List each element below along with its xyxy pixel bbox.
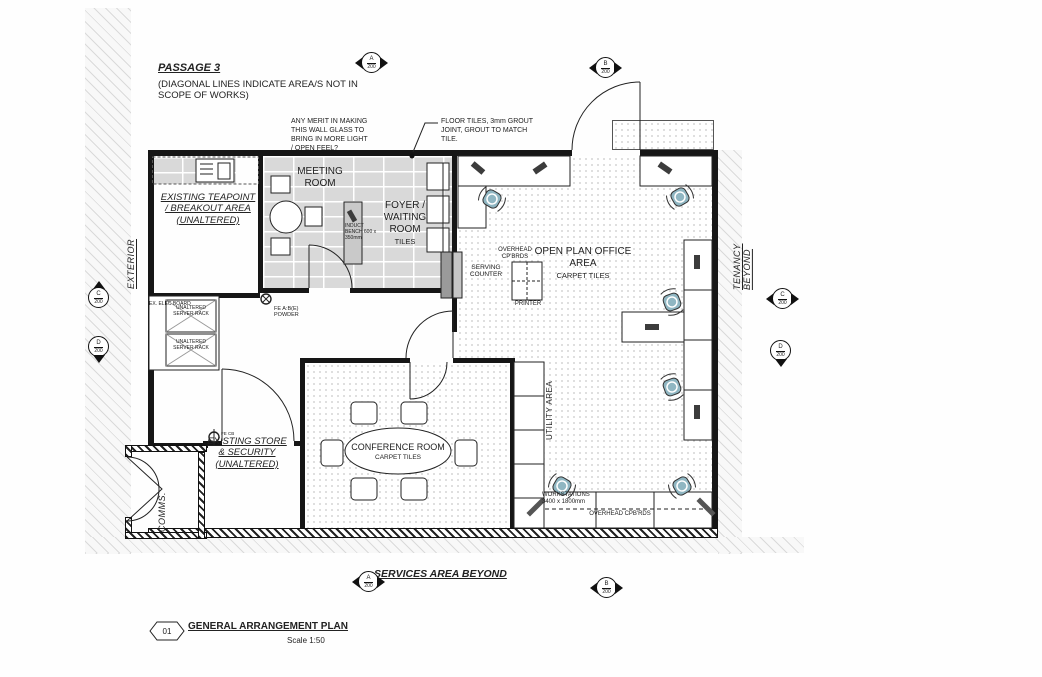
marker-arrow-right: [380, 57, 388, 69]
marker-arrow-right: [614, 62, 622, 74]
overhead-cupboards-label: OVERHEAD CPB'RDS: [580, 511, 660, 518]
marker-number: 200: [601, 68, 609, 75]
marker-number: 200: [778, 299, 786, 306]
section-marker-a-top: A200: [355, 52, 388, 73]
section-marker-b-bottom: B200: [590, 577, 623, 598]
foyer-name: FOYER / WAITING ROOM: [384, 200, 426, 235]
drawing-scale: Scale 1:50: [287, 636, 325, 646]
marker-number: 200: [94, 298, 102, 305]
teapoint-counter-strip: [152, 157, 236, 184]
foyer-floor: TILES: [368, 237, 442, 246]
conference-floor: CARPET TILES: [346, 454, 450, 462]
section-marker-b-top: B200: [589, 57, 622, 78]
wall-conference-right: [510, 358, 515, 528]
comms-wall-left-upper: [125, 445, 132, 457]
exterior-label: EXTERIOR: [127, 225, 137, 289]
open-plan-name: OPEN PLAN OFFICE AREA: [535, 246, 632, 269]
marker-letter: C: [96, 291, 100, 297]
comms-wall-bottom: [125, 532, 207, 539]
comms-label: COMMS.: [158, 460, 168, 532]
marker-number: 200: [602, 588, 610, 595]
wall-conference-top-a: [300, 358, 410, 363]
marker-letter: A: [366, 575, 370, 581]
annotation-floor-tiles: FLOOR TILES, 3mm GROUT JOINT, GROUT TO M…: [441, 117, 543, 144]
wall-foyer-right: [452, 150, 457, 332]
section-marker-d-left: D200: [88, 336, 109, 363]
open-plan-label: OPEN PLAN OFFICE AREACARPET TILES: [528, 246, 638, 280]
fire-extinguisher-2-label: FE CB: [221, 431, 235, 436]
corridor-door-swing: [406, 311, 453, 358]
marker-number: 200: [367, 63, 375, 70]
wall-bottom: [148, 528, 718, 538]
marker-letter: B: [603, 61, 607, 67]
section-marker-d-right: D200: [770, 340, 791, 367]
scope-note: (DIAGONAL LINES INDICATE AREA/S NOT IN S…: [158, 79, 366, 102]
store-label: EXISTING STORE & SECURITY (UNALTERED): [203, 436, 291, 470]
server-rack-2-label: UNALTERED SERVER RACK: [168, 340, 214, 352]
marker-letter: D: [778, 344, 782, 350]
wall-teapoint-meeting: [258, 150, 263, 293]
comms-wall-top: [125, 445, 207, 452]
wall-store-top-b: [294, 441, 304, 446]
wall-conference-top-b: [453, 358, 515, 363]
conference-label: CONFERENCE ROOMCARPET TILES: [346, 442, 450, 462]
wall-left: [148, 150, 154, 450]
services-area-label: SERVICES AREA BEYOND: [374, 568, 507, 581]
hatch-band-right: [718, 150, 742, 554]
wall-teapoint-bottom: [148, 293, 260, 298]
drawing-title: GENERAL ARRANGEMENT PLAN: [188, 621, 348, 633]
induct-bench-label: INDUCT BENCH 600 x 350mm: [345, 224, 379, 241]
marker-arrow-down: [775, 359, 787, 367]
marker-number: 200: [364, 582, 372, 589]
drawing-number: 01: [158, 627, 176, 637]
marker-number: 200: [776, 351, 784, 358]
annotation-wall-glass: ANY MERIT IN MAKING THIS WALL GLASS TO B…: [291, 117, 369, 153]
utility-area-label: UTILITY AREA: [546, 362, 555, 440]
marker-arrow-right: [791, 293, 799, 305]
fire-extinguisher-icon: [261, 294, 271, 304]
teapoint-label: EXISTING TEAPOINT / BREAKOUT AREA (UNALT…: [160, 192, 256, 226]
foyer-label: FOYER / WAITING ROOMTILES: [368, 200, 442, 246]
tenancy-beyond-label: TENANCY BEYOND: [733, 228, 753, 290]
open-plan-floor: CARPET TILES: [528, 271, 638, 280]
conference-name: CONFERENCE ROOM: [351, 442, 445, 452]
printer-label: PRINTER: [513, 301, 543, 308]
wall-meeting-bottom-b: [350, 288, 452, 293]
marker-arrow-right: [377, 576, 385, 588]
carpet-entry-vestibule: [612, 120, 714, 150]
marker-number: 200: [94, 347, 102, 354]
marker-letter: B: [604, 581, 608, 587]
marker-letter: A: [369, 56, 373, 62]
serving-counter-label: SERVING COUNTER: [464, 264, 508, 279]
section-marker-a-bottom: A200: [352, 571, 385, 592]
workstations-label: WORKSTATIONS 3400 x 1800mm: [542, 492, 602, 506]
marker-letter: C: [780, 292, 784, 298]
marker-letter: D: [96, 340, 100, 346]
meeting-room-label: MEETING ROOM: [287, 166, 353, 190]
floor-plan-sheet: PASSAGE 3 (DIAGONAL LINES INDICATE AREA/…: [0, 0, 1042, 677]
server-rack-1-label: UNALTERED SERVER RACK: [168, 306, 214, 318]
fire-extinguisher-label: FE A:B(E) POWDER: [274, 306, 302, 319]
overhead-cpbrds-label: OVERHEAD CP'BRDS: [494, 247, 536, 261]
passage-title: PASSAGE 3: [158, 62, 220, 75]
wall-right: [712, 150, 718, 534]
wall-top-b: [640, 150, 718, 156]
section-marker-c-left: C200: [88, 281, 109, 308]
wall-meeting-bottom-a: [263, 288, 309, 293]
section-marker-c-right: C200: [766, 288, 799, 309]
marker-arrow-right: [615, 582, 623, 594]
marker-arrow-down: [93, 355, 105, 363]
hatch-band-bottom: [85, 537, 804, 553]
